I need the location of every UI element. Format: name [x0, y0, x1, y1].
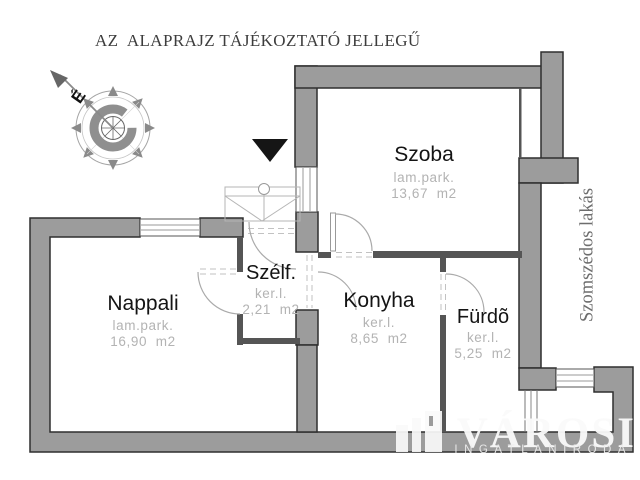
entrance-triangle-icon [252, 139, 288, 162]
compass-icon [50, 70, 155, 170]
door-szoba [331, 213, 373, 257]
room-name: Szoba [391, 144, 456, 166]
room-floor: ker.l. [343, 315, 414, 331]
wall-br-jog [519, 368, 556, 390]
wall-top-szoba [295, 66, 542, 88]
room-floor: lam.park. [391, 170, 456, 186]
room-name: Fürdõ [454, 306, 511, 328]
wall-right-jog [519, 158, 578, 183]
room-name: Szélf. [242, 262, 299, 284]
room-floor: ker.l. [454, 330, 511, 346]
room-floor: lam.park. [107, 318, 178, 334]
neighbor-apartment-label: Szomszédos lakás [578, 188, 599, 322]
room-area: 8,65 m2 [343, 331, 414, 347]
brand-mark-icon [396, 410, 450, 452]
wall-west-mid [296, 212, 318, 252]
room-area: 13,67 m2 [391, 186, 456, 202]
room-area: 2,21 m2 [242, 302, 299, 318]
window-bottom-right [556, 369, 594, 387]
watermark-subtitle: INGATLANIRODA [454, 444, 632, 456]
disclaimer-title: AZ ALAPRAJZ TÁJÉKOZTATÓ JELLEGŰ [95, 31, 421, 51]
door-nappali [198, 269, 240, 314]
entrance-landing [225, 184, 300, 222]
room-area: 5,25 m2 [454, 346, 511, 362]
wall-right-inner [519, 183, 541, 368]
room-area: 16,90 m2 [107, 334, 178, 350]
entrance [225, 139, 300, 221]
room-floor: ker.l. [242, 286, 299, 302]
window-west [296, 167, 317, 212]
room-label-szelf: Szélf. ker.l. 2,21 m2 [242, 262, 299, 318]
room-name: Konyha [343, 290, 414, 312]
room-label-konyha: Konyha ker.l. 8,65 m2 [343, 290, 414, 347]
room-name: Nappali [107, 293, 178, 315]
floor-plan-drawing [0, 0, 640, 480]
room-label-szoba: Szoba lam.park. 13,67 m2 [391, 144, 456, 202]
window-nappali-north [140, 219, 200, 236]
wall-nappali-konyha [297, 345, 317, 432]
room-label-furdo: Fürdõ ker.l. 5,25 m2 [454, 306, 511, 362]
room-label-nappali: Nappali lam.park. 16,90 m2 [107, 293, 178, 350]
floor-plan-page: AZ ALAPRAJZ TÁJÉKOZTATÓ JELLEGŰ É Szoba … [0, 0, 640, 480]
